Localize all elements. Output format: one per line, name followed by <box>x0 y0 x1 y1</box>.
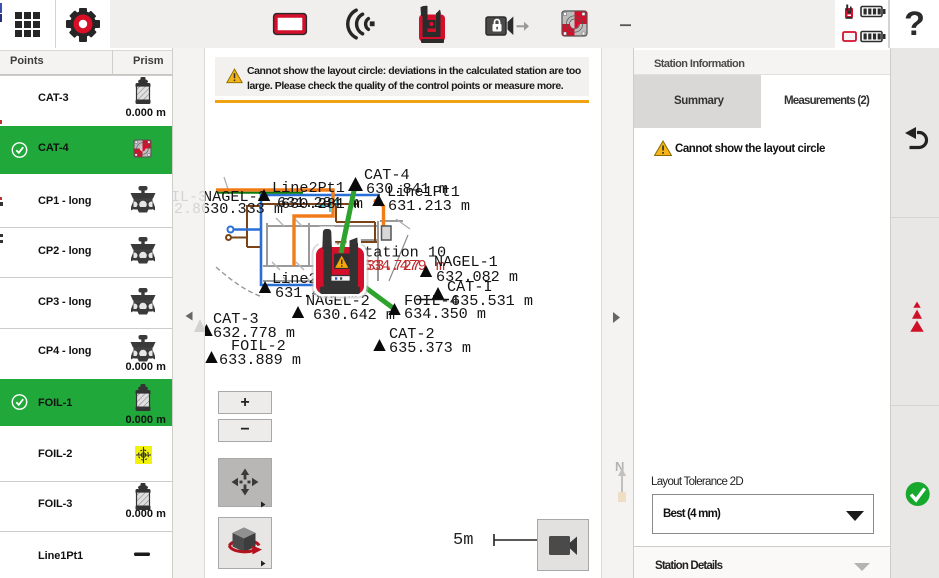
svg-text:2.805: 2.805 <box>174 201 205 218</box>
svg-text:633.889 m: 633.889 m <box>219 351 301 369</box>
svg-text:630.333 m: 630.333 m <box>205 200 283 218</box>
svg-text:634.350 m: 634.350 m <box>404 305 486 323</box>
svg-text:634.479 m: 634.479 m <box>363 257 445 275</box>
svg-text:631.213 m: 631.213 m <box>388 197 470 215</box>
svg-text:635.373 m: 635.373 m <box>389 339 471 357</box>
svg-text:630.642 m: 630.642 m <box>313 306 395 324</box>
